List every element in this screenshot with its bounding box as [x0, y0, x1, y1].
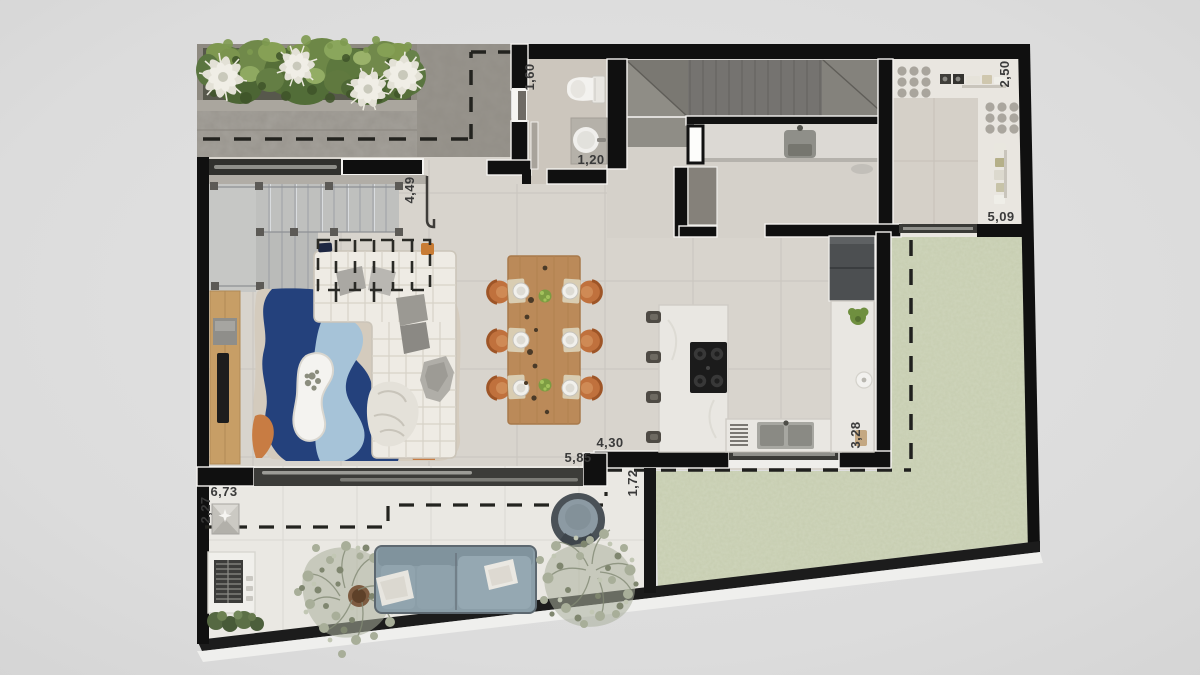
svg-text:2,50: 2,50 [997, 61, 1012, 88]
svg-text:6,73: 6,73 [211, 484, 238, 499]
svg-text:1,72: 1,72 [625, 470, 640, 497]
svg-text:1,20: 1,20 [578, 152, 605, 167]
svg-text:4,30: 4,30 [597, 435, 624, 450]
svg-text:5,09: 5,09 [988, 209, 1015, 224]
svg-text:3,28: 3,28 [848, 422, 863, 449]
svg-text:5,85: 5,85 [565, 450, 592, 465]
svg-text:1,60: 1,60 [522, 64, 537, 91]
svg-text:2,27: 2,27 [198, 497, 213, 524]
svg-text:4,49: 4,49 [402, 177, 417, 204]
